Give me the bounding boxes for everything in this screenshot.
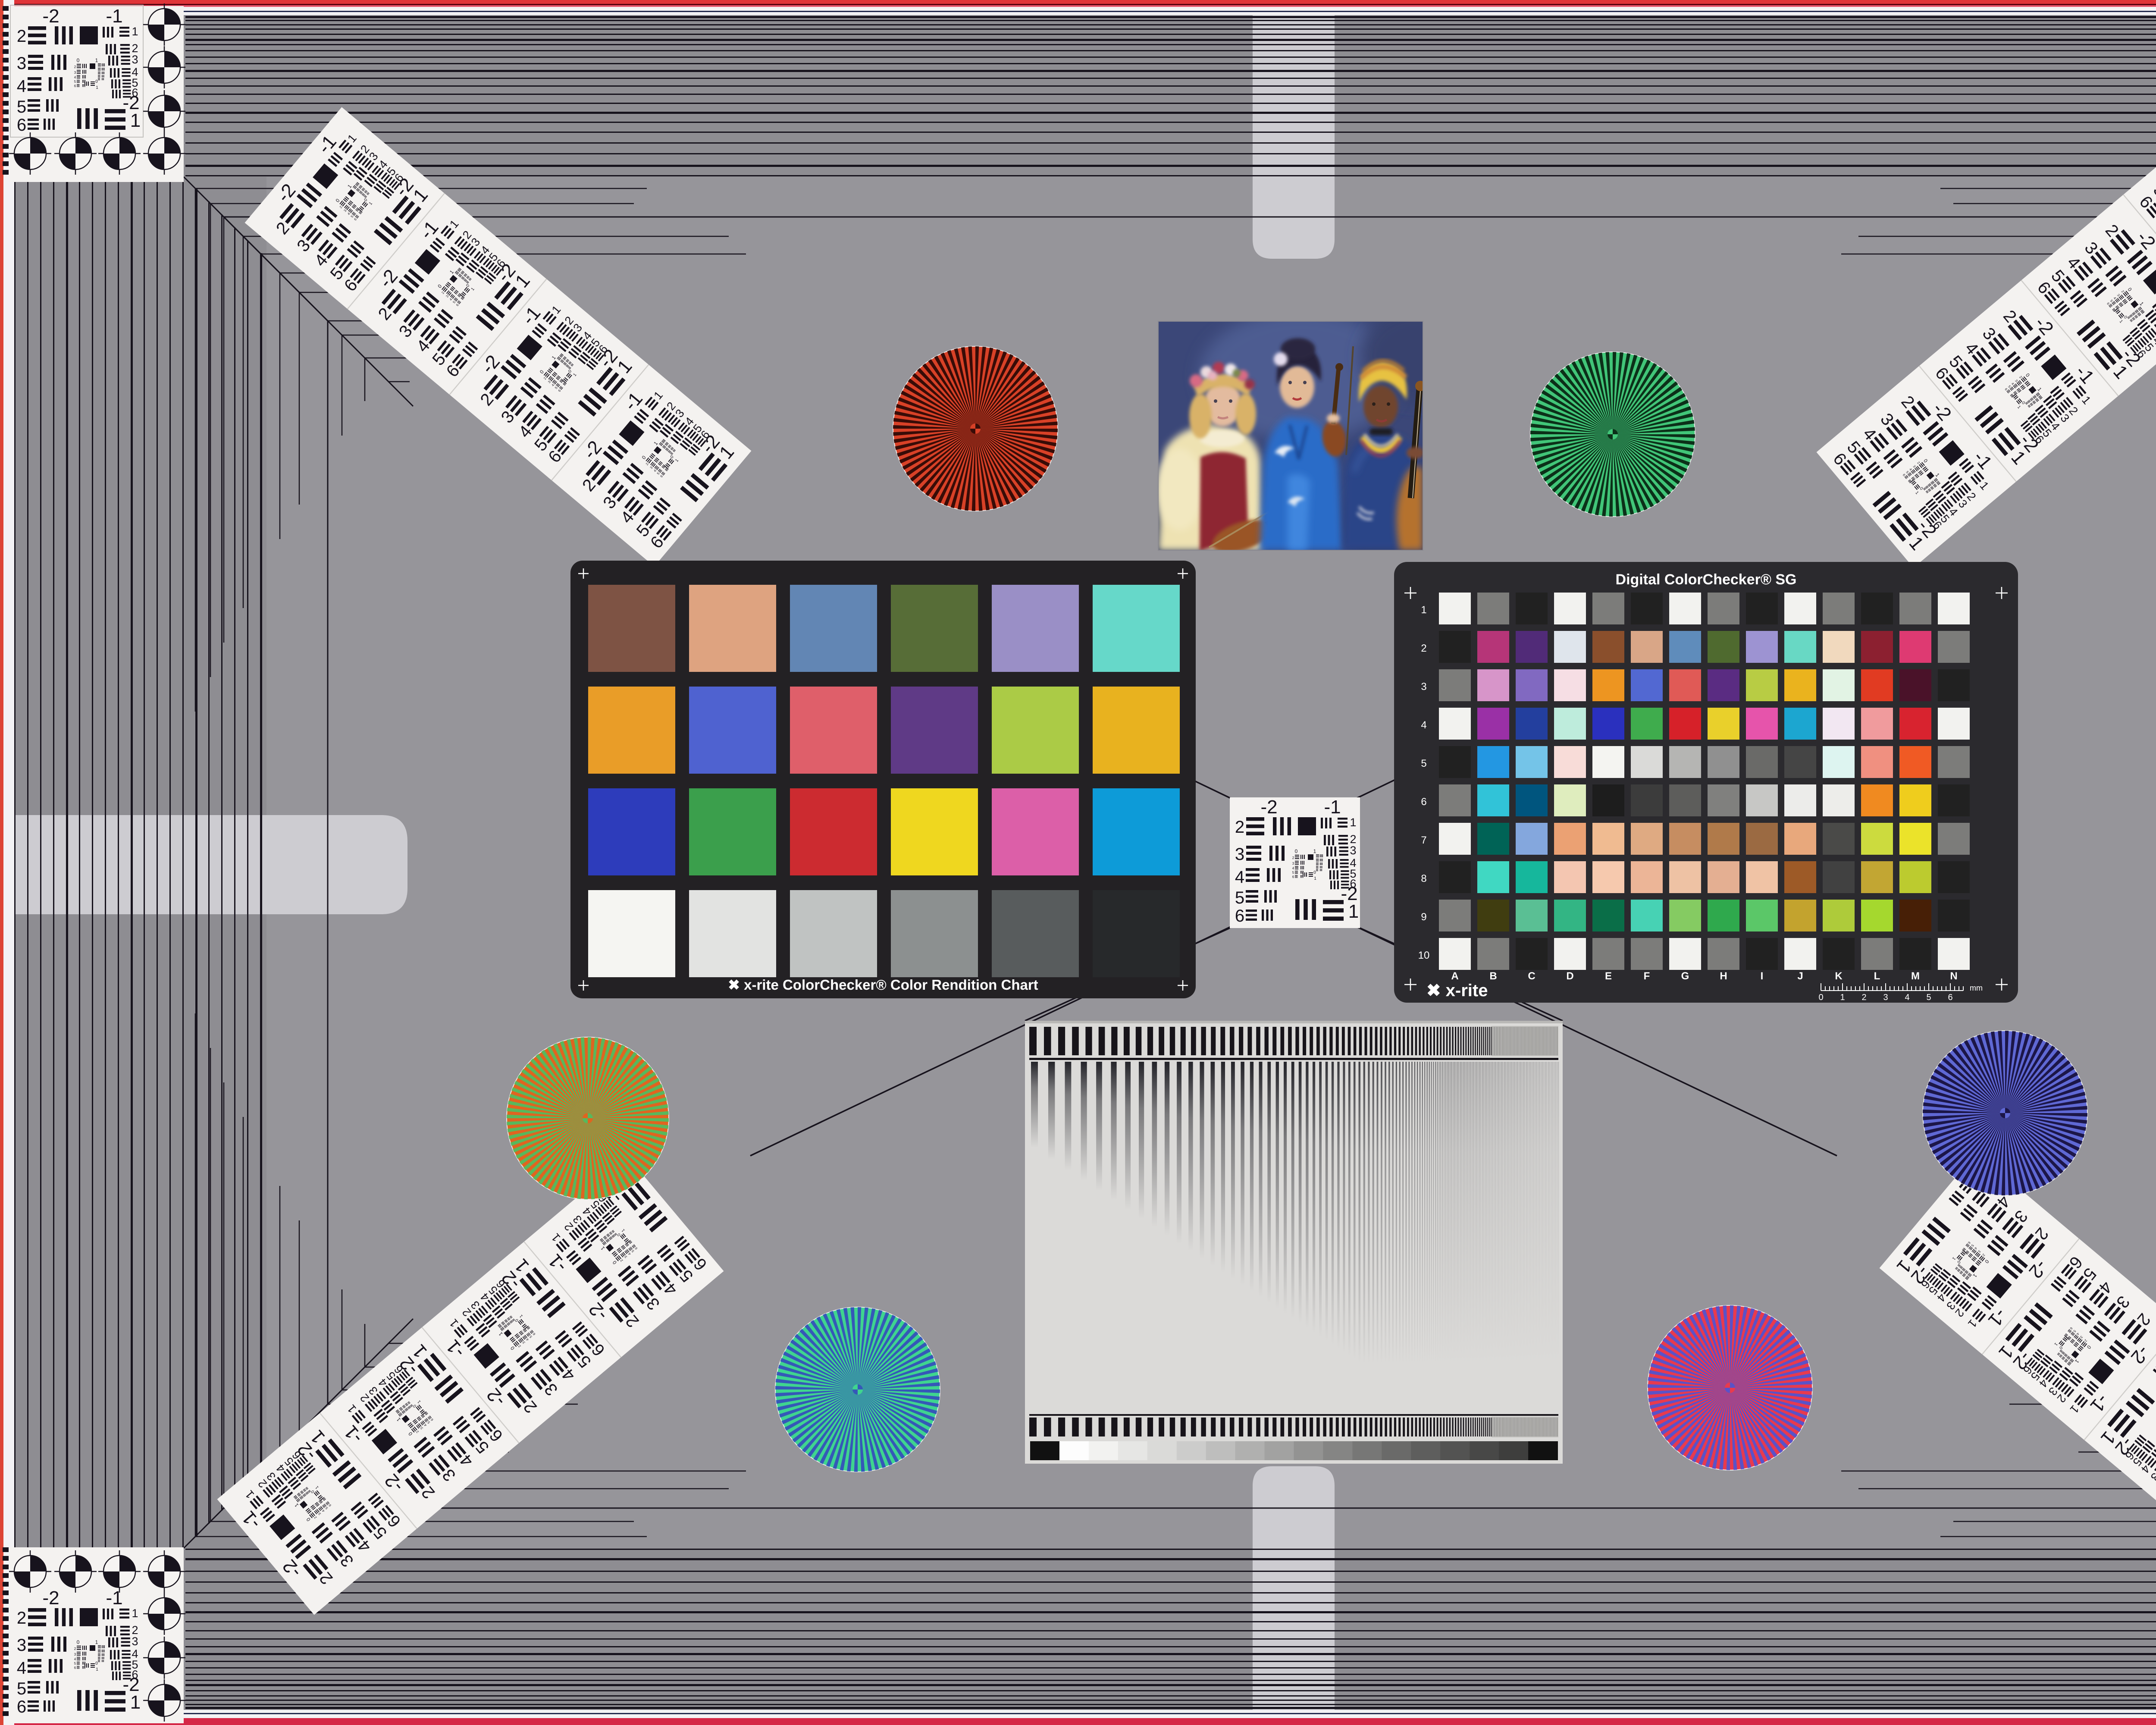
svg-text:1: 1 (1421, 604, 1426, 616)
svg-text:J: J (1797, 970, 1803, 982)
svg-text:D: D (1566, 970, 1573, 982)
svg-text:4: 4 (1905, 993, 1909, 1002)
svg-text:F: F (1644, 970, 1650, 982)
svg-text:6: 6 (1421, 796, 1426, 808)
svg-text:mm: mm (1970, 984, 1983, 992)
svg-text:K: K (1835, 970, 1843, 982)
svg-text:L: L (1874, 970, 1880, 982)
svg-text:10: 10 (1418, 950, 1430, 961)
svg-text:6: 6 (1948, 993, 1952, 1002)
svg-text:4: 4 (1421, 719, 1426, 731)
svg-text:G: G (1681, 970, 1689, 982)
svg-text:2: 2 (1421, 643, 1426, 654)
svg-text:A: A (1451, 970, 1458, 982)
svg-text:M: M (1911, 970, 1920, 982)
svg-text:3: 3 (1421, 681, 1426, 693)
svg-text:C: C (1528, 970, 1535, 982)
svg-text:9: 9 (1421, 911, 1426, 923)
svg-text:5: 5 (1421, 758, 1426, 769)
svg-text:N: N (1950, 970, 1957, 982)
svg-text:E: E (1605, 970, 1612, 982)
svg-text:✖ x-rite ColorChecker® Color: ✖ x-rite ColorChecker® Color Rendition C… (728, 977, 1038, 993)
svg-text:3: 3 (1883, 993, 1888, 1002)
svg-text:5: 5 (1926, 993, 1931, 1002)
svg-text:2: 2 (1861, 993, 1866, 1002)
svg-text:I: I (1761, 970, 1764, 982)
svg-text:Digital ColorChecker® SG: Digital ColorChecker® SG (1616, 571, 1797, 588)
svg-text:1: 1 (1840, 993, 1845, 1002)
svg-text:B: B (1489, 970, 1497, 982)
svg-text:7: 7 (1421, 834, 1426, 846)
svg-text:8: 8 (1421, 873, 1426, 884)
svg-text:✖ x-rite: ✖ x-rite (1426, 981, 1488, 1000)
svg-text:0: 0 (1818, 993, 1823, 1002)
svg-text:H: H (1720, 970, 1727, 982)
